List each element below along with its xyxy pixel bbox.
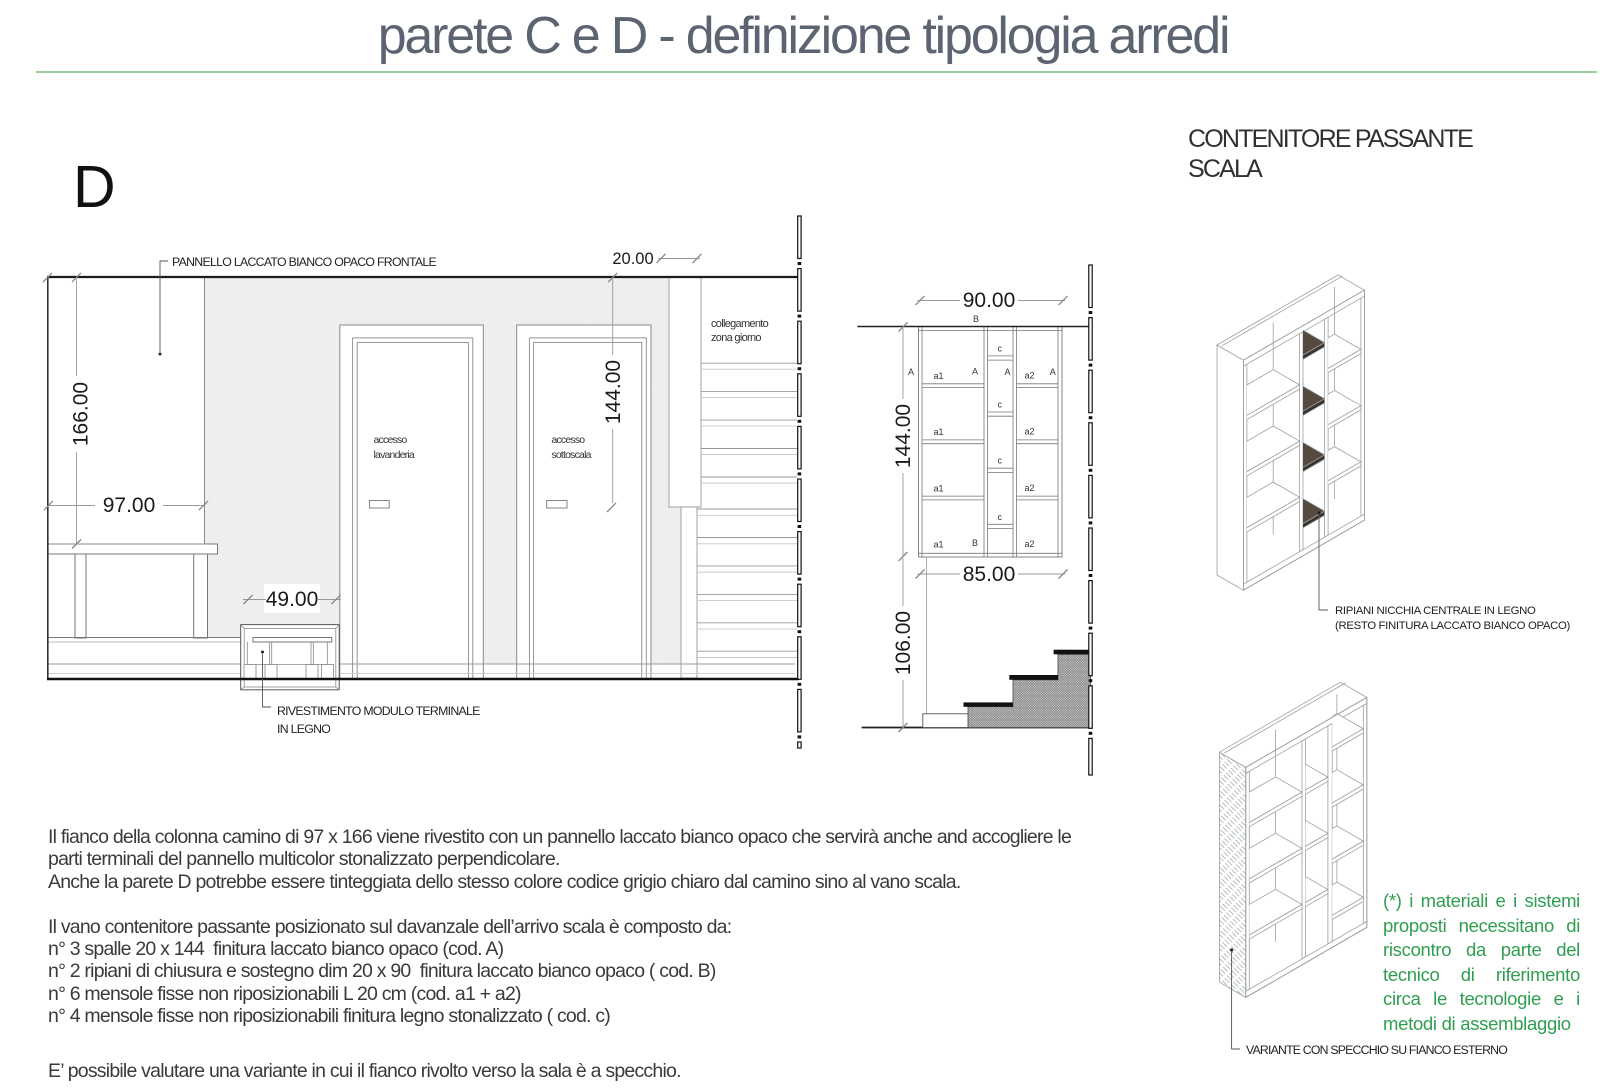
svg-text:collegamento: collegamento <box>711 318 769 330</box>
svg-text:A: A <box>1005 367 1011 377</box>
svg-text:A: A <box>1050 367 1056 377</box>
svg-text:a2: a2 <box>1025 371 1035 381</box>
svg-text:PANNELLO LACCATO BIANCO OPACO: PANNELLO LACCATO BIANCO OPACO FRONTALE <box>172 255 437 269</box>
svg-text:A: A <box>908 367 914 377</box>
svg-text:a2: a2 <box>1025 483 1035 493</box>
svg-text:c: c <box>998 399 1003 409</box>
svg-text:accesso: accesso <box>551 434 585 446</box>
svg-text:a1: a1 <box>934 540 944 550</box>
svg-text:a2: a2 <box>1025 539 1035 549</box>
svg-text:106.00: 106.00 <box>892 611 915 675</box>
svg-text:c: c <box>998 456 1003 466</box>
svg-text:A: A <box>972 367 978 377</box>
svg-text:B: B <box>972 538 978 548</box>
svg-text:accesso: accesso <box>374 434 408 446</box>
svg-text:zona giorno: zona giorno <box>711 332 761 344</box>
svg-text:IN LEGNO: IN LEGNO <box>277 722 330 736</box>
svg-text:VARIANTE CON SPECCHIO SU FIANC: VARIANTE CON SPECCHIO SU FIANCO ESTERNO <box>1246 1043 1507 1057</box>
svg-text:lavanderia: lavanderia <box>374 449 415 461</box>
svg-text:c: c <box>998 512 1003 522</box>
svg-text:c: c <box>998 343 1003 353</box>
svg-text:97.00: 97.00 <box>103 494 156 517</box>
svg-text:a2: a2 <box>1025 427 1035 437</box>
svg-text:144.00: 144.00 <box>892 404 915 468</box>
svg-text:a1: a1 <box>934 483 944 493</box>
svg-text:144.00: 144.00 <box>602 360 625 424</box>
svg-text:a1: a1 <box>934 427 944 437</box>
svg-text:85.00: 85.00 <box>963 563 1016 586</box>
svg-text:90.00: 90.00 <box>963 289 1016 312</box>
svg-text:B: B <box>973 314 979 324</box>
svg-text:RIPIANI NICCHIA CENTRALE IN LE: RIPIANI NICCHIA CENTRALE IN LEGNO <box>1335 605 1536 617</box>
svg-text:49.00: 49.00 <box>266 588 319 611</box>
svg-text:sottoscala: sottoscala <box>551 449 591 461</box>
svg-text:a1: a1 <box>934 371 944 381</box>
svg-text:20.00: 20.00 <box>612 250 653 268</box>
svg-text:(RESTO FINITURA LACCATO BIANCO: (RESTO FINITURA LACCATO BIANCO OPACO) <box>1335 620 1570 632</box>
svg-text:166.00: 166.00 <box>70 382 93 446</box>
svg-text:RIVESTIMENTO MODULO TERMINALE: RIVESTIMENTO MODULO TERMINALE <box>277 704 480 718</box>
